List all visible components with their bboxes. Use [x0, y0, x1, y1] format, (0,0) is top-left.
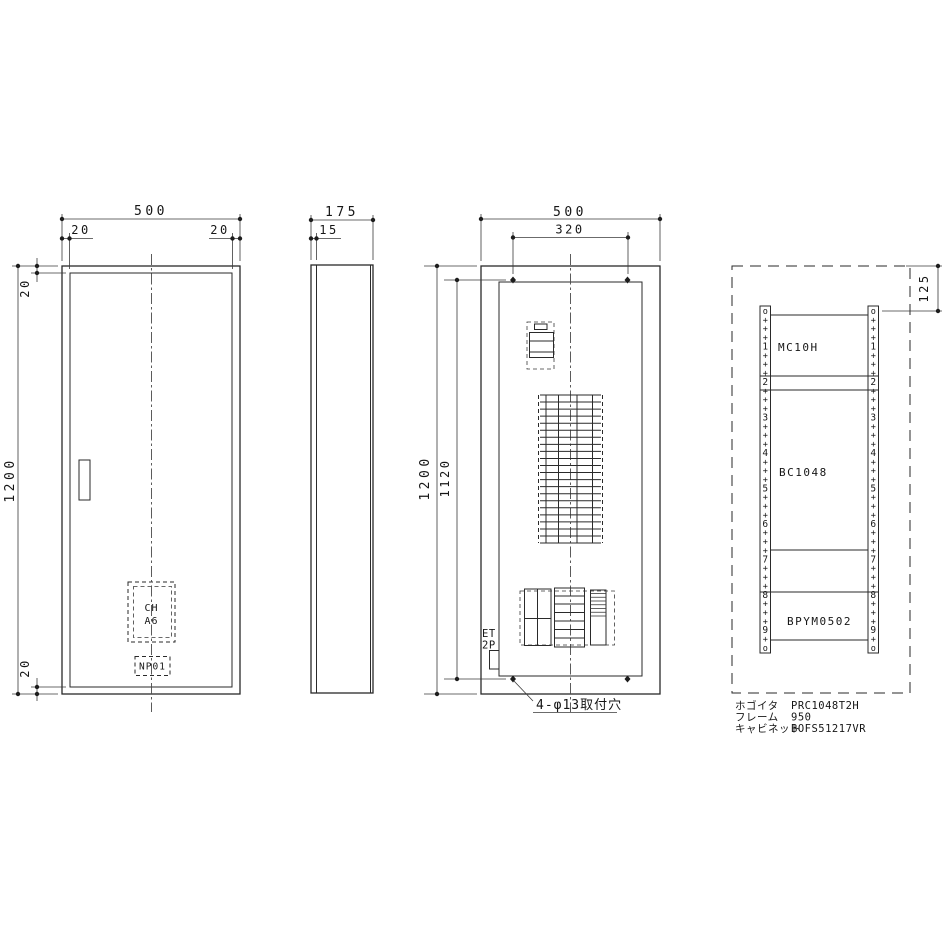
rail-marks-right: o+++1+++2+++3+++4+++5+++6+++7+++8+++9+o [870, 307, 876, 654]
layout-dimensions [882, 264, 942, 313]
section-label-bc1048: BC1048 [779, 466, 828, 479]
dim-front-margin-right: 20 [210, 223, 229, 237]
section-label-bpym0502: BPYM0502 [787, 615, 852, 628]
layout-linework: o+++1+++2+++3+++4+++5+++6+++7+++8+++9+o … [732, 266, 910, 693]
front-view-dimensions [12, 214, 242, 701]
rail-mark: o [871, 644, 876, 654]
dim-hole-span: 320 [555, 223, 584, 237]
dim-internal-width: 500 [553, 205, 587, 220]
front-view-linework [62, 254, 240, 712]
spec-row-label: ホゴイタ [735, 699, 779, 712]
dim-hole-height: 1120 [438, 459, 452, 498]
door-handle [79, 460, 90, 500]
dim-top-offset: 125 [917, 273, 931, 302]
spec-row-value: BOFS51217VR [791, 723, 866, 735]
drawing-page: 500 20 20 1200 20 20 CH A6 NP01 175 15 [0, 0, 944, 944]
side-view: 175 15 [309, 205, 375, 693]
cabinet-outline-dashed [732, 266, 910, 693]
side-view-dimensions [309, 215, 375, 260]
cad-drawing: 500 20 20 1200 20 20 CH A6 NP01 175 15 [0, 0, 944, 944]
spec-row-value: PRC1048T2H [791, 700, 859, 712]
et-breaker [490, 651, 500, 670]
internal-view-linework [481, 254, 660, 712]
internal-view: 500 320 1200 1120 ET 2P 4-φ13取付穴 [418, 205, 662, 713]
dim-front-margin-left: 20 [71, 223, 90, 237]
terminal-stack-lines [555, 596, 585, 638]
dim-front-width: 500 [134, 204, 168, 219]
mounting-hole [625, 676, 631, 683]
leader-line [514, 681, 533, 701]
side-view-linework [311, 265, 373, 693]
bottom-device-group [490, 588, 615, 669]
spec-row-value: 950 [791, 712, 811, 724]
dim-side-door: 15 [319, 223, 338, 237]
dim-front-height: 1200 [3, 457, 18, 502]
rail-marks-left: o+++1+++2+++3+++4+++5+++6+++7+++8+++9+o [762, 307, 768, 654]
et-label-line1: ET [482, 628, 496, 640]
dim-front-top: 20 [18, 278, 32, 297]
rail-layout-view: o+++1+++2+++3+++4+++5+++6+++7+++8+++9+o … [732, 264, 942, 693]
nameplate-line2: A6 [144, 616, 158, 627]
device-hatch-lines [591, 594, 607, 617]
rail-mark: o [763, 644, 768, 654]
front-view: 500 20 20 1200 20 20 CH A6 NP01 [3, 204, 242, 712]
mounting-hole-note: 4-φ13取付穴 [536, 698, 622, 713]
dim-internal-height: 1200 [418, 455, 433, 500]
dim-side-depth: 175 [325, 205, 359, 220]
et-label-line2: 2P [482, 640, 496, 652]
main-breaker [527, 322, 554, 369]
mounting-hole [510, 676, 516, 683]
section-label-mc10h: MC10H [778, 341, 819, 354]
spec-table: ホゴイタ PRC1048T2H フレーム 950 キャビネット BOFS5121… [735, 699, 866, 735]
np-tag-label: NP01 [139, 662, 166, 673]
internal-view-dimensions [424, 214, 662, 713]
dim-front-bottom: 20 [18, 658, 32, 677]
spec-row-label: フレーム [735, 712, 779, 724]
nameplate-line1: CH [144, 603, 158, 614]
